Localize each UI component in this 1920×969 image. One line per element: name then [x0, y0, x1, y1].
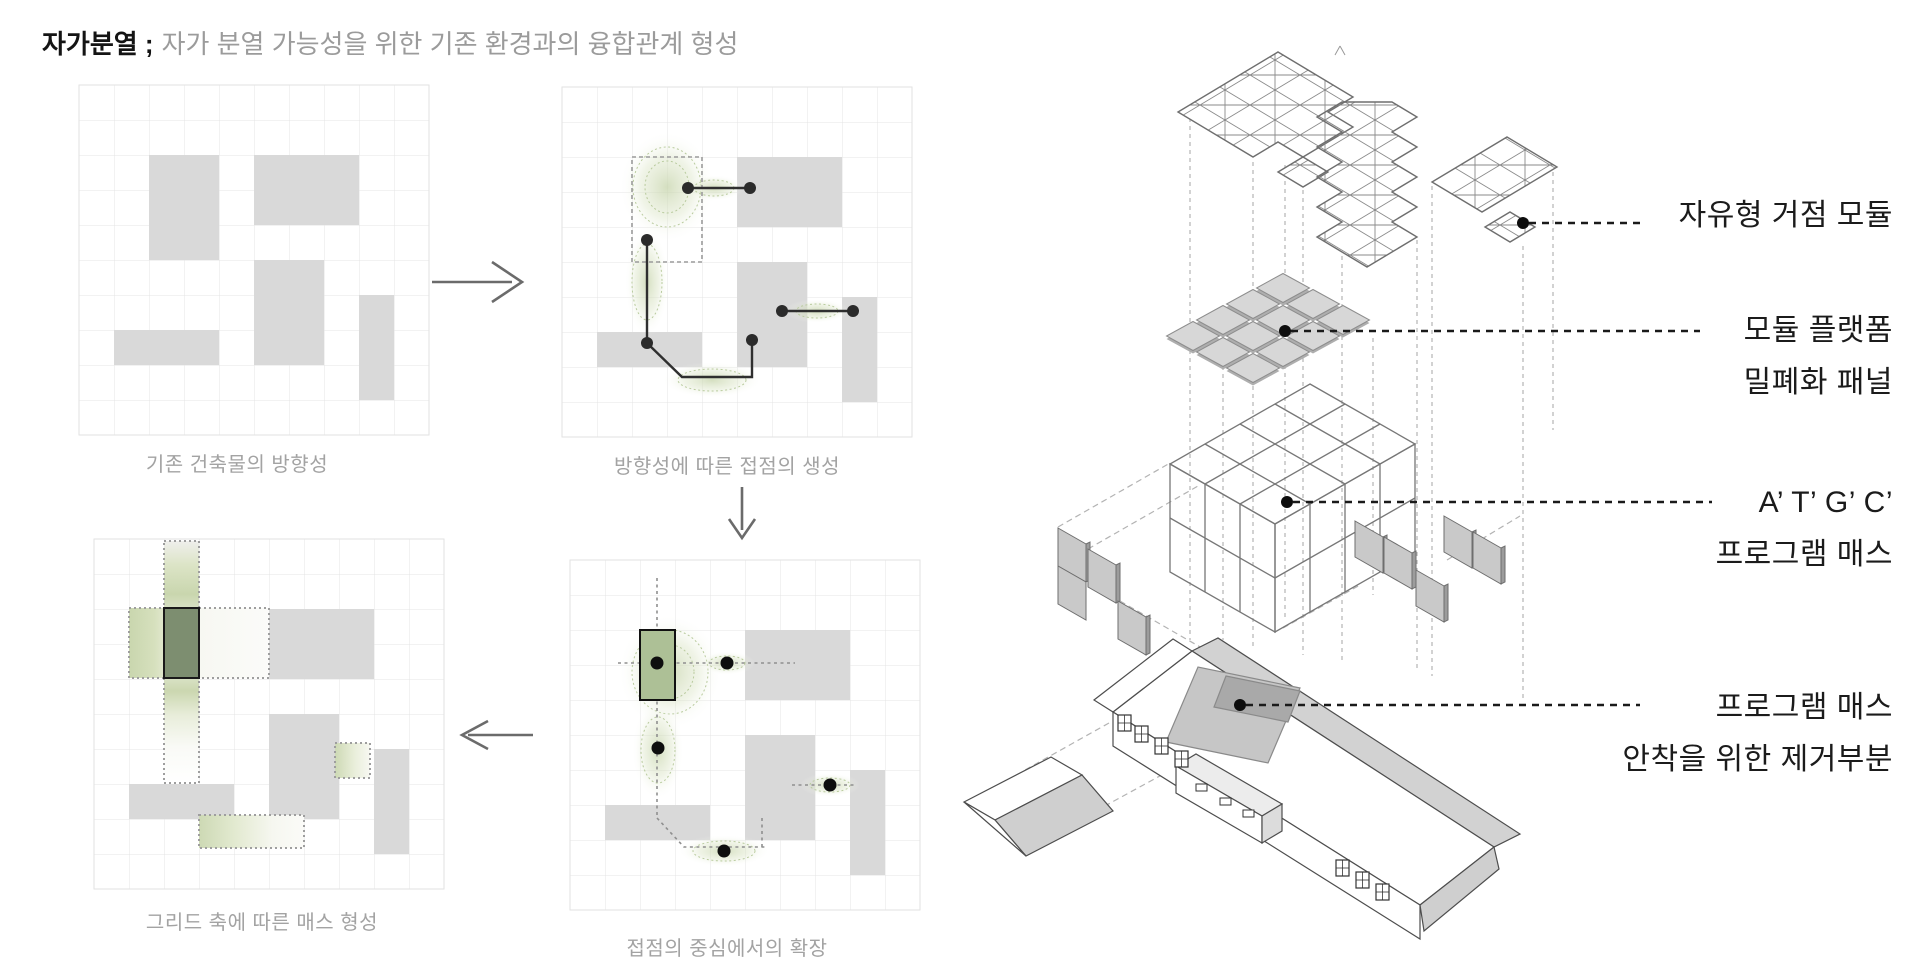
label-line: A’ T’ G’ C’ — [1716, 477, 1893, 529]
label-line: 밀폐화 패널 — [1744, 357, 1893, 409]
arrow-down-icon — [729, 487, 755, 538]
architecture-concept-diagram: 자가분열 ;자가 분열 가능성을 위한 기존 환경과의 융합관계 형성 기존 건… — [0, 0, 1920, 969]
diagram-canvas — [0, 0, 1920, 969]
step2-caption: 방향성에 따른 접점의 생성 — [537, 450, 917, 479]
bottom-mass-band — [199, 815, 304, 848]
module-anchor-dot — [1517, 217, 1529, 229]
detached-wing — [964, 757, 1113, 856]
step2-diagram — [562, 87, 912, 437]
existing-school-building — [964, 638, 1520, 939]
enclosure-panels — [1058, 516, 1505, 655]
label-line: 안착을 위한 제거부분 — [1622, 734, 1893, 786]
removal-anchor-dot — [1234, 699, 1246, 711]
label-line: 프로그램 매스 — [1716, 529, 1893, 581]
step1-caption: 기존 건축물의 방향성 — [57, 448, 417, 477]
label-line: 프로그램 매스 — [1622, 682, 1893, 734]
freeform-truss-modules — [1178, 46, 1557, 267]
small-mass-cell — [335, 743, 370, 778]
label-line: 모듈 플랫폼 — [1744, 305, 1893, 357]
label-program-mass: A’ T’ G’ C’ 프로그램 매스 — [1716, 477, 1893, 581]
program-mass-frame — [1170, 384, 1415, 632]
page-title: 자가분열 ;자가 분열 가능성을 위한 기존 환경과의 융합관계 형성 — [42, 24, 738, 61]
arrow-left-icon — [462, 721, 533, 749]
step4-caption: 접점의 중심에서의 확장 — [537, 932, 917, 961]
step3-caption: 그리드 축에 따른 매스 형성 — [82, 906, 442, 935]
title-subtitle: 자가 분열 가능성을 위한 기존 환경과의 융합관계 형성 — [162, 29, 739, 59]
label-module-platform: 모듈 플랫폼 밀폐화 패널 — [1744, 305, 1893, 409]
label-freeform-module: 자유형 거점 모듈 — [1679, 190, 1893, 242]
module-platform — [1167, 274, 1370, 386]
title-term: 자가분열 ; — [42, 29, 154, 59]
core-mass-dark-green-rect — [164, 608, 199, 678]
north-mark — [1335, 46, 1345, 55]
label-removal-area: 프로그램 매스 안착을 위한 제거부분 — [1622, 682, 1893, 786]
step3-diagram — [94, 539, 444, 889]
arrow-right-icon — [432, 262, 522, 302]
step1-diagram — [79, 85, 429, 435]
platform-anchor-dot — [1279, 325, 1291, 337]
program-mass-anchor-dot — [1281, 496, 1293, 508]
step4-diagram — [570, 560, 920, 910]
